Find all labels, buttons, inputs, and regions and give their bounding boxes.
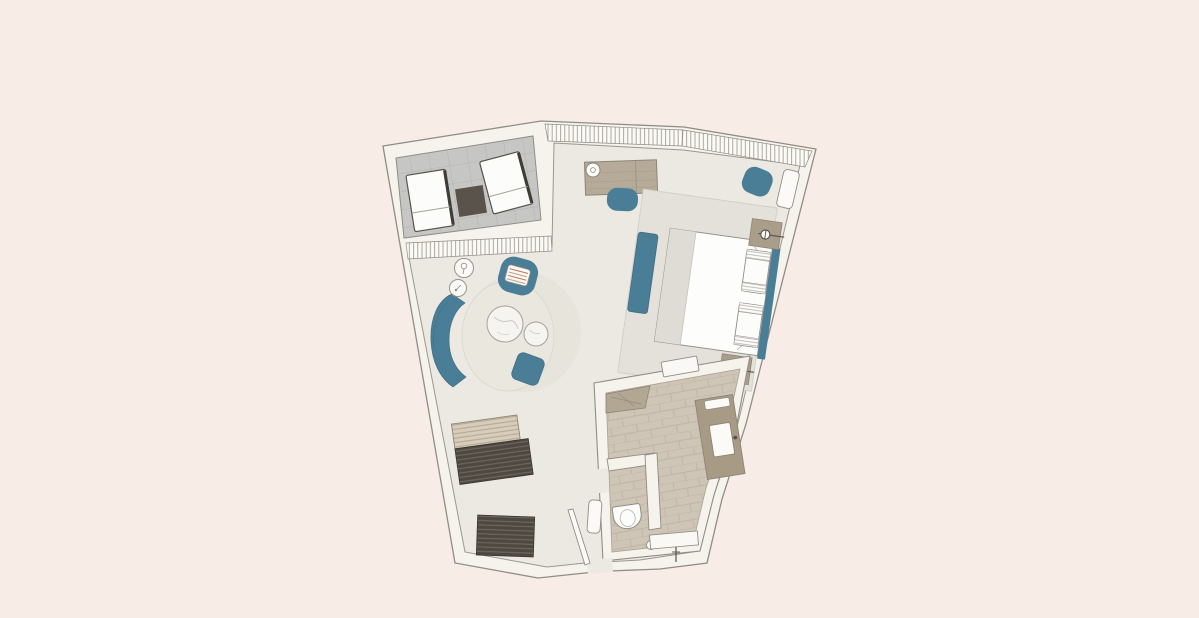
decor-glyph	[455, 289, 457, 291]
sink	[709, 422, 735, 457]
sun-lounger	[406, 169, 454, 232]
side-table	[455, 259, 474, 278]
terrace-side-table	[455, 185, 487, 217]
entry-door-opening	[587, 558, 613, 574]
wardrobe-lower	[476, 515, 534, 557]
bathroom-door-leaf	[587, 500, 602, 534]
floor-plan-svg	[0, 0, 1199, 618]
side-table	[450, 280, 467, 297]
desk-lamp	[586, 163, 600, 177]
desk-chair	[606, 187, 638, 212]
coffee-table-small	[524, 322, 548, 346]
floor-plan-canvas	[0, 0, 1199, 618]
coffee-table-large	[487, 306, 523, 342]
bathroom-door-opening	[590, 468, 609, 494]
